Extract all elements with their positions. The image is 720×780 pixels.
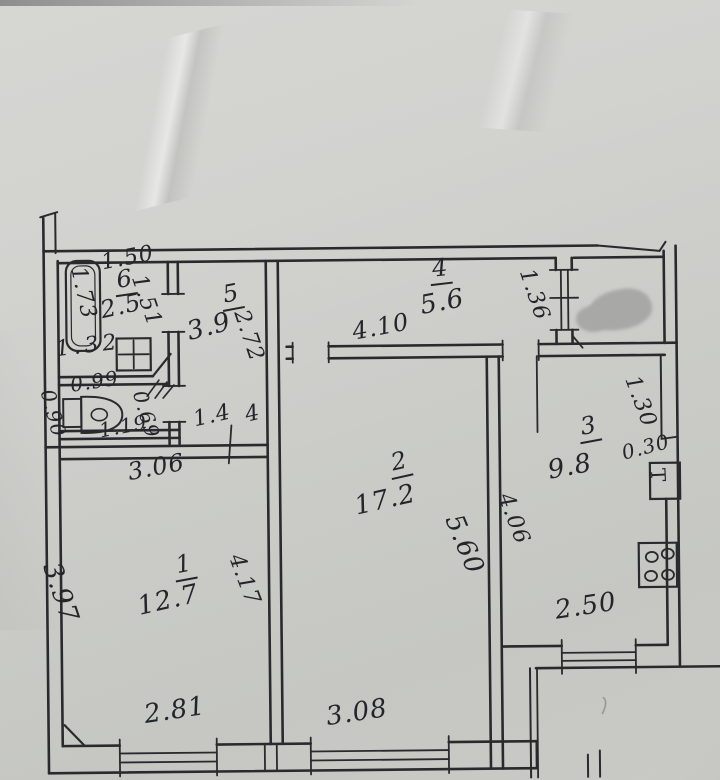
floor-plan-drawing: 1.50 6 2.5 1.51 1.73 1.32 0.99 0.90 0.69… — [0, 0, 720, 780]
room3-area: 9.8 — [546, 450, 594, 484]
scan-smudge — [576, 306, 610, 332]
floor-plan-photo: 1.50 6 2.5 1.51 1.73 1.32 0.99 0.90 0.69… — [0, 0, 720, 780]
room5-number: 5 — [218, 279, 244, 307]
hall4-area: 5.6 — [418, 285, 466, 319]
room1-number: 1 — [171, 550, 197, 578]
vent-shaft-label: Т — [648, 468, 669, 483]
hall4-number: 4 — [428, 255, 453, 281]
room3-number: 3 — [575, 412, 601, 440]
